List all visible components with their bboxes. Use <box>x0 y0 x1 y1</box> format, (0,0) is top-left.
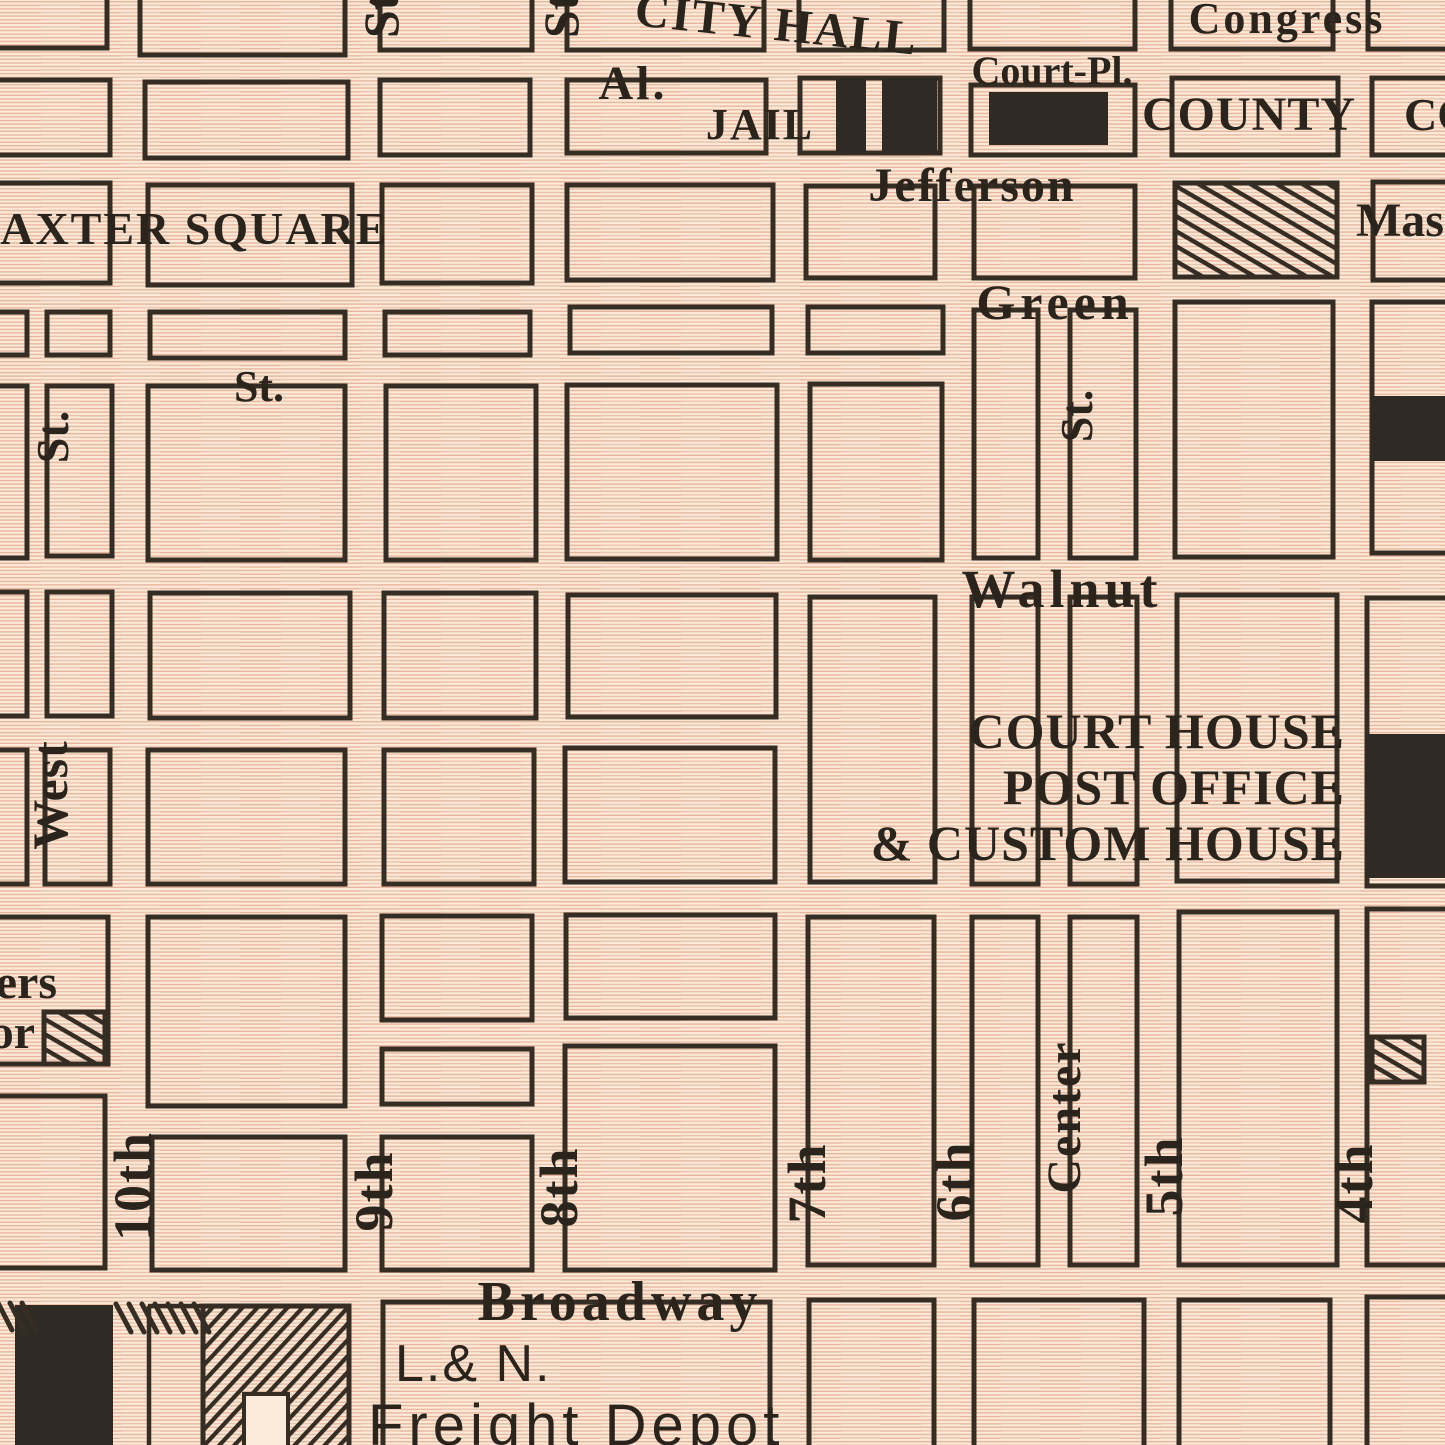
svg-text:8th: 8th <box>529 1146 589 1227</box>
svg-text:COUNTY: COUNTY <box>1142 88 1356 141</box>
svg-text:Al.: Al. <box>599 57 668 110</box>
svg-text:& CUSTOM HOUSE: & CUSTOM HOUSE <box>871 815 1345 871</box>
svg-text:BAXTER SQUARE: BAXTER SQUARE <box>0 203 388 254</box>
svg-text:Walnut: Walnut <box>961 559 1162 619</box>
svg-text:ers: ers <box>0 956 57 1009</box>
svg-text:6th: 6th <box>925 1140 985 1221</box>
svg-text:7th: 7th <box>777 1142 837 1223</box>
svg-text:St: St <box>353 0 409 38</box>
svg-text:4th: 4th <box>1324 1142 1384 1223</box>
svg-text:Center: Center <box>1038 1040 1091 1193</box>
svg-text:St.: St. <box>234 362 284 411</box>
svg-text:or: or <box>0 1006 35 1059</box>
svg-text:Freight Depot: Freight Depot <box>368 1393 784 1445</box>
svg-text:9th: 9th <box>344 1150 404 1231</box>
svg-text:Jefferson: Jefferson <box>868 159 1075 212</box>
svg-text:JAIL: JAIL <box>706 100 814 149</box>
svg-text:St.: St. <box>1051 390 1102 442</box>
svg-text:Broadway: Broadway <box>478 1271 763 1333</box>
svg-text:10th: 10th <box>103 1131 163 1241</box>
svg-text:Court-Pl.: Court-Pl. <box>971 48 1132 93</box>
svg-text:L.& N.: L.& N. <box>395 1335 552 1393</box>
svg-text:St: St <box>533 0 589 38</box>
svg-text:Mas: Mas <box>1356 194 1444 247</box>
svg-text:COU: COU <box>1404 89 1445 140</box>
svg-text:West: West <box>22 740 78 850</box>
svg-text:Congress: Congress <box>1189 0 1386 43</box>
svg-text:Green: Green <box>976 274 1133 330</box>
svg-text:COURT HOUSE: COURT HOUSE <box>969 703 1345 759</box>
svg-text:St.: St. <box>27 411 78 463</box>
svg-text:5th: 5th <box>1134 1135 1194 1216</box>
svg-text:POST OFFICE: POST OFFICE <box>1003 759 1345 815</box>
